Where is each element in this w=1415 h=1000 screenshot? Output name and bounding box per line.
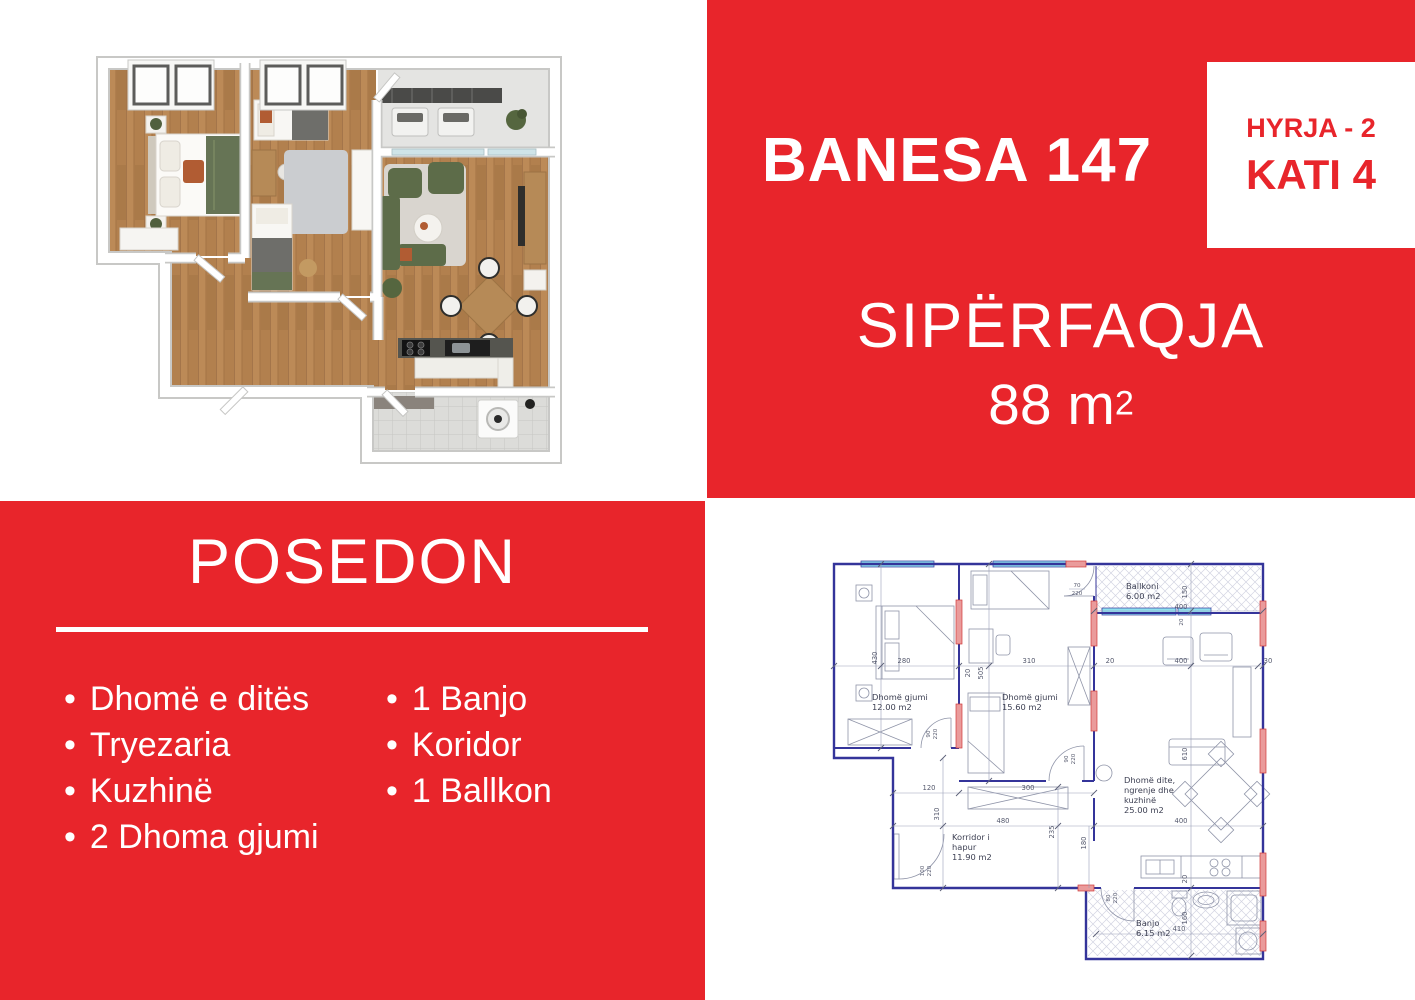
svg-text:610: 610 [1181,748,1189,761]
svg-text:6.15 m2: 6.15 m2 [1136,928,1170,938]
svg-text:400: 400 [1175,657,1188,665]
features-column-2: •1 Banjo •Koridor •1 Ballkon [386,682,705,866]
svg-text:220: 220 [1071,753,1077,764]
svg-text:kuzhinë: kuzhinë [1124,795,1156,805]
svg-text:25.00 m2: 25.00 m2 [1124,805,1164,815]
svg-text:100: 100 [920,865,926,876]
feature-label: Tryezaria [90,726,230,764]
room-label-bedroom1: Dhomë gjumi [872,692,928,702]
area-superscript: 2 [1115,385,1134,423]
room-label-corridor: Korridor i [952,832,990,842]
features-panel: POSEDON •Dhomë e ditës •Tryezaria •Kuzhi… [0,501,705,1000]
svg-text:hapur: hapur [952,842,977,852]
page-title: BANESA 147 [762,130,1152,192]
svg-text:430: 430 [871,652,879,665]
svg-text:220: 220 [927,865,933,876]
list-item: •Kuzhinë [64,774,386,808]
feature-label: Dhomë e ditës [90,680,309,718]
svg-text:20: 20 [964,669,972,678]
features-column-1: •Dhomë e ditës •Tryezaria •Kuzhinë •2 Dh… [64,682,386,866]
area-value: 88 m2 [707,377,1415,434]
bullet-icon: • [64,682,76,716]
entry-floor-box: HYRJA - 2 KATI 4 [1207,62,1415,248]
list-item: •1 Ballkon [386,774,705,808]
floor-plan-2d-panel: 280 310 20 400 30 400 120 300 480 400 41… [706,501,1415,1000]
svg-text:20: 20 [1181,875,1189,884]
feature-label: 1 Ballkon [412,772,552,810]
render-3d-panel [0,0,706,499]
svg-text:90: 90 [1064,755,1070,763]
bullet-icon: • [64,820,76,854]
area-number: 88 m [988,373,1115,437]
svg-text:20: 20 [1106,657,1115,665]
list-item: •Dhomë e ditës [64,682,386,716]
svg-text:ngrenje dhe: ngrenje dhe [1124,785,1174,795]
svg-text:235: 235 [1048,826,1056,839]
bullet-icon: • [386,728,398,762]
entry-label: HYRJA - 2 [1246,115,1376,142]
svg-text:505: 505 [977,667,985,680]
svg-text:400: 400 [1175,603,1188,611]
bullet-icon: • [386,774,398,808]
room-label-bedroom2: Dhomë gjumi [1002,692,1058,702]
room-label-bath: Banjo [1136,918,1159,928]
furniture-2d [848,566,1270,954]
list-item: •Tryezaria [64,728,386,762]
floor-plan-2d: 280 310 20 400 30 400 120 300 480 400 41… [706,501,1415,1000]
svg-text:120: 120 [923,784,936,792]
svg-text:90: 90 [926,730,932,738]
svg-text:180: 180 [1080,837,1088,850]
svg-text:11.90 m2: 11.90 m2 [952,852,992,862]
svg-text:220: 220 [933,728,939,739]
list-item: •Koridor [386,728,705,762]
feature-label: 1 Banjo [412,680,527,718]
svg-text:80: 80 [1106,894,1112,902]
feature-label: Kuzhinë [90,772,213,810]
list-item: •1 Banjo [386,682,705,716]
svg-text:310: 310 [1023,657,1036,665]
bullet-icon: • [64,774,76,808]
floor-label: KATI 4 [1246,154,1376,196]
room-label-balcony: Ballkoni [1126,581,1159,591]
svg-text:220: 220 [1072,591,1083,597]
svg-text:15.60 m2: 15.60 m2 [1002,702,1042,712]
header-panel: BANESA 147 HYRJA - 2 KATI 4 SIPËRFAQJA 8… [707,0,1415,498]
area-label: SIPËRFAQJA [707,292,1415,361]
svg-text:280: 280 [898,657,911,665]
svg-text:70: 70 [1073,583,1081,589]
svg-text:12.00 m2: 12.00 m2 [872,702,912,712]
bullet-icon: • [64,728,76,762]
svg-text:220: 220 [1113,892,1119,903]
floor-plan-3d [0,0,706,499]
features-columns: •Dhomë e ditës •Tryezaria •Kuzhinë •2 Dh… [64,682,705,866]
bullet-icon: • [386,682,398,716]
svg-text:160: 160 [1181,912,1189,925]
features-title: POSEDON [0,531,705,594]
svg-text:6.00 m2: 6.00 m2 [1126,591,1160,601]
svg-text:150: 150 [1181,586,1189,599]
room-label-living: Dhomë dite, [1124,775,1175,785]
feature-label: Koridor [412,726,522,764]
svg-text:300: 300 [1022,784,1035,792]
svg-text:410: 410 [1173,925,1186,933]
svg-text:480: 480 [997,817,1010,825]
svg-text:310: 310 [933,808,941,821]
feature-label: 2 Dhoma gjumi [90,818,319,856]
list-item: •2 Dhoma gjumi [64,820,386,854]
svg-text:20: 20 [1179,618,1185,626]
svg-text:30: 30 [1264,657,1273,665]
area-block: SIPËRFAQJA 88 m2 [707,292,1415,434]
room-labels: Dhomë gjumi 12.00 m2 Dhomë gjumi 15.60 m… [872,581,1175,938]
divider-line [56,627,648,632]
svg-text:400: 400 [1175,817,1188,825]
